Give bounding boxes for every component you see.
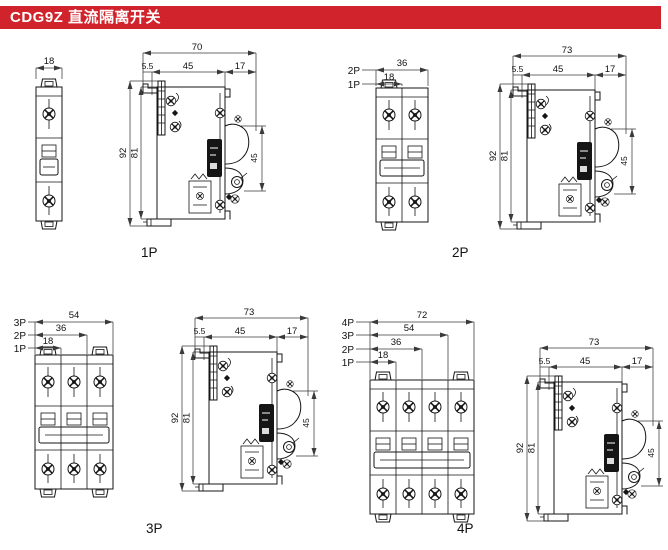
pole-ref-4p: 4P (342, 318, 355, 329)
dim-4p-2p-width: 36 (391, 337, 402, 348)
breaker-side-view-2p: 73 (488, 45, 636, 229)
breaker-side-view-1p: 70 (118, 42, 266, 226)
dim-3p-pole-width: 18 (43, 336, 54, 347)
pole-ref-1p: 1P (14, 344, 27, 355)
dim-2p-depth: 73 (562, 45, 573, 56)
dim-4p-width: 72 (417, 310, 428, 321)
pole-ref-1p: 1P (348, 80, 361, 91)
dim-3p-2p-width: 36 (56, 323, 67, 334)
pole-ref-2p: 2P (348, 66, 361, 77)
panel-label-1p: 1P (141, 245, 158, 260)
dim-2p-pole-width: 18 (384, 72, 395, 83)
panel-label-3p: 3P (146, 521, 163, 536)
panel-label-4p: 4P (457, 521, 474, 536)
pole-ref-3p: 3P (342, 331, 355, 342)
pole-ref-2p: 2P (342, 345, 355, 356)
datasheet-page: CDG9Z 直流隔离开关 (0, 0, 668, 550)
dim-3p-depth: 73 (244, 307, 255, 318)
breaker-front-view-2p: 2P 1P 36 18 (348, 58, 428, 230)
technical-drawing: 5.5 45 17 92 81 45 (0, 0, 668, 550)
breaker-front-view-3p: 3P 2P 1P 54 36 18 (14, 310, 113, 497)
dim-4p-pole-width: 18 (378, 350, 389, 361)
breaker-front-view-1p: 18 (36, 56, 62, 229)
panel-label-2p: 2P (452, 245, 469, 260)
dim-2p-width: 36 (397, 58, 408, 69)
dim-1p-width: 18 (44, 56, 55, 67)
dim-4p-3p-width: 54 (404, 323, 415, 334)
breaker-side-view-3p: 73 (170, 307, 318, 491)
breaker-front-view-4p: 4P 3P 2P 1P 72 54 36 18 (342, 310, 474, 522)
pole-ref-1p: 1P (342, 358, 355, 369)
dim-3p-width: 54 (69, 310, 80, 321)
dim-4p-depth: 73 (589, 337, 600, 348)
dim-1p-depth: 70 (192, 42, 203, 53)
pole-ref-2p: 2P (14, 331, 27, 342)
breaker-side-view-4p: 73 (515, 337, 663, 521)
pole-ref-3p: 3P (14, 318, 27, 329)
